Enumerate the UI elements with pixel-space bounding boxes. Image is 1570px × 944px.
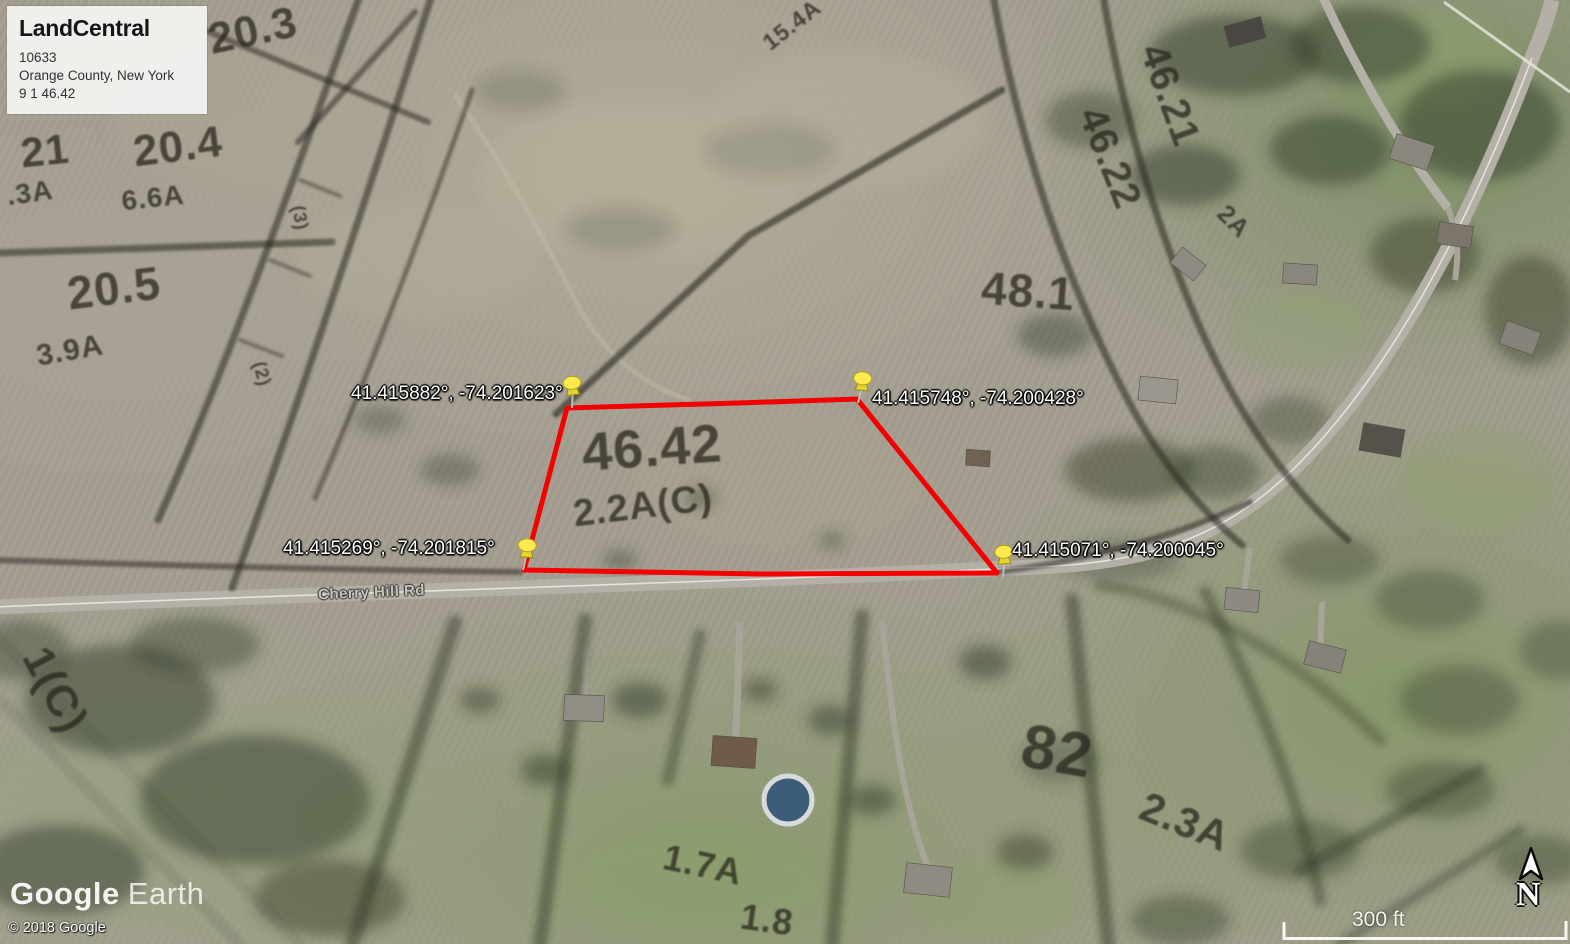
parcel-reference: 9 1 46.42 [19, 85, 195, 103]
pin-coordinate-label-nw: 41.415882°, -74.201623° [351, 383, 563, 405]
google-earth-logo: GoogleEarth [10, 876, 204, 912]
parcel-label: 21 [19, 128, 72, 175]
earth-logo-text: Earth [128, 876, 205, 911]
scale-bar-label: 300 ft [1352, 908, 1405, 932]
swimming-pool [764, 776, 812, 824]
parcel-label: 48.1 [980, 265, 1077, 317]
parcel-label: 6.6A [120, 181, 186, 215]
north-arrow-label: N [1516, 876, 1541, 914]
parcel-label: 20.5 [65, 259, 163, 316]
listing-info-card: LandCentral 10633 Orange County, New Yor… [7, 6, 207, 114]
scale-bar [1284, 921, 1566, 940]
pin-coordinate-label-ne: 41.415748°, -74.200428° [872, 388, 1084, 410]
pin-coordinate-label-sw: 41.415269°, -74.201815° [283, 538, 495, 560]
pin-coordinate-label-se: 41.415071°, -74.200045° [1012, 540, 1224, 562]
listing-location: Orange County, New York [19, 67, 195, 85]
parcel-label: 82 [1017, 715, 1098, 788]
copyright-text: © 2018 Google [8, 920, 106, 936]
map-art-layer [0, 0, 1570, 944]
google-logo-text: Google [10, 876, 120, 911]
brand-name: LandCentral [19, 15, 195, 42]
satellite-map-canvas[interactable]: 20.3 21 .3A 20.4 6.6A 20.5 3.9A 15.4A 46… [0, 0, 1570, 944]
parcel-label: 1.8 [738, 898, 796, 941]
parcel-label: 20.4 [131, 120, 225, 175]
listing-id: 10633 [19, 49, 195, 67]
parcel-label: .3A [5, 176, 55, 210]
parcel-label: 46.42 [580, 416, 724, 480]
parcel-label: (3) [289, 204, 311, 232]
